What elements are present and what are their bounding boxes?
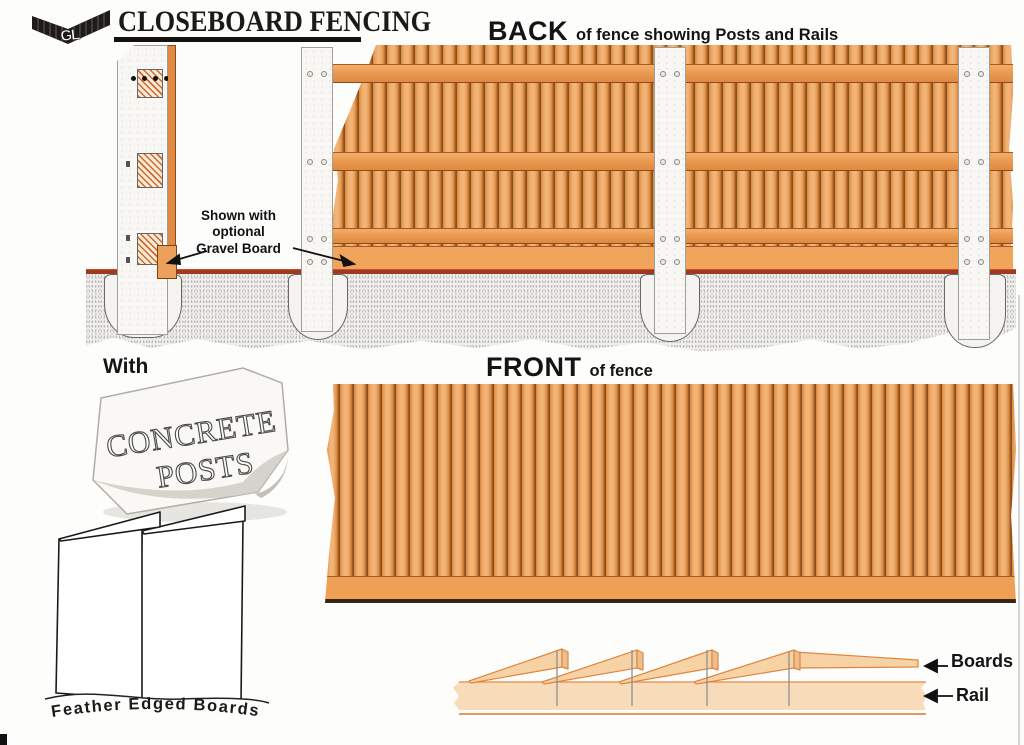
- brochure-page: GL CLOSEBOARD FENCING BACK of fence show…: [0, 0, 1024, 745]
- logo-monogram: GL: [60, 26, 81, 45]
- bolt-pair: [964, 159, 984, 164]
- bolt-pair: [964, 259, 984, 264]
- front-heading: FRONT of fence: [486, 352, 653, 383]
- board-front-face: [140, 520, 243, 703]
- fence-base-line: [325, 599, 1016, 603]
- bolt-dot: [153, 76, 158, 81]
- rail-label: Rail: [956, 685, 989, 706]
- bolt-pair: [307, 159, 327, 164]
- gravel-board-annotation: Shown with optional Gravel Board: [166, 208, 311, 257]
- bolt-dot: [131, 76, 136, 81]
- board-end-face: [712, 650, 718, 670]
- board-front-face: [56, 528, 142, 699]
- rail-detail-illustration: [445, 630, 945, 730]
- bolt-mark: [126, 235, 130, 241]
- annotation-line: Gravel Board: [166, 241, 311, 257]
- mortise-slot: [137, 153, 163, 188]
- back-heading: BACK of fence showing Posts and Rails: [488, 16, 838, 47]
- bolt-pair: [660, 71, 680, 76]
- post-front: [958, 47, 990, 340]
- board-wedge: [795, 652, 918, 668]
- board-end-face: [562, 649, 568, 669]
- front-fence-panel: [325, 384, 1016, 603]
- gravel-board-front: [325, 576, 1016, 600]
- annotation-line: optional: [166, 224, 311, 240]
- annotation-line: Shown with: [166, 208, 311, 224]
- ground-strip: [86, 272, 1016, 352]
- boards-label: Boards: [951, 651, 1013, 672]
- board-wedge: [469, 649, 562, 683]
- bolt-dot: [142, 76, 147, 81]
- back-heading-word: BACK: [488, 16, 568, 47]
- front-heading-rest: of fence: [589, 362, 652, 381]
- bolt-pair: [307, 71, 327, 76]
- bolt-pair: [660, 259, 680, 264]
- title-underline: [114, 37, 361, 42]
- scan-edge-line: [1018, 295, 1020, 745]
- fence-corner-logo: GL: [30, 2, 115, 50]
- bolt-pair: [964, 71, 984, 76]
- back-heading-rest: of fence showing Posts and Rails: [576, 26, 838, 45]
- page-title: CLOSEBOARD FENCING: [118, 5, 431, 39]
- post-front: [654, 47, 686, 334]
- post-side-view: [117, 45, 168, 335]
- bolt-pair: [660, 236, 680, 241]
- bolt-pair: [964, 236, 984, 241]
- ground-line: [86, 269, 1016, 274]
- board-end-face: [637, 650, 643, 670]
- front-boards-texture: [325, 384, 1016, 576]
- scan-corner-mark: [0, 734, 7, 745]
- rail-band: [453, 682, 927, 710]
- mortise-slot: [137, 69, 163, 98]
- feather-boards-illustration: Feather Edged Boards: [42, 503, 272, 723]
- bolt-pair: [660, 159, 680, 164]
- post-front: [301, 47, 333, 332]
- board-end-face: [794, 650, 800, 670]
- front-heading-word: FRONT: [486, 352, 581, 383]
- bolt-mark: [126, 161, 130, 167]
- bolt-pair: [307, 259, 327, 264]
- bolt-mark: [126, 257, 130, 263]
